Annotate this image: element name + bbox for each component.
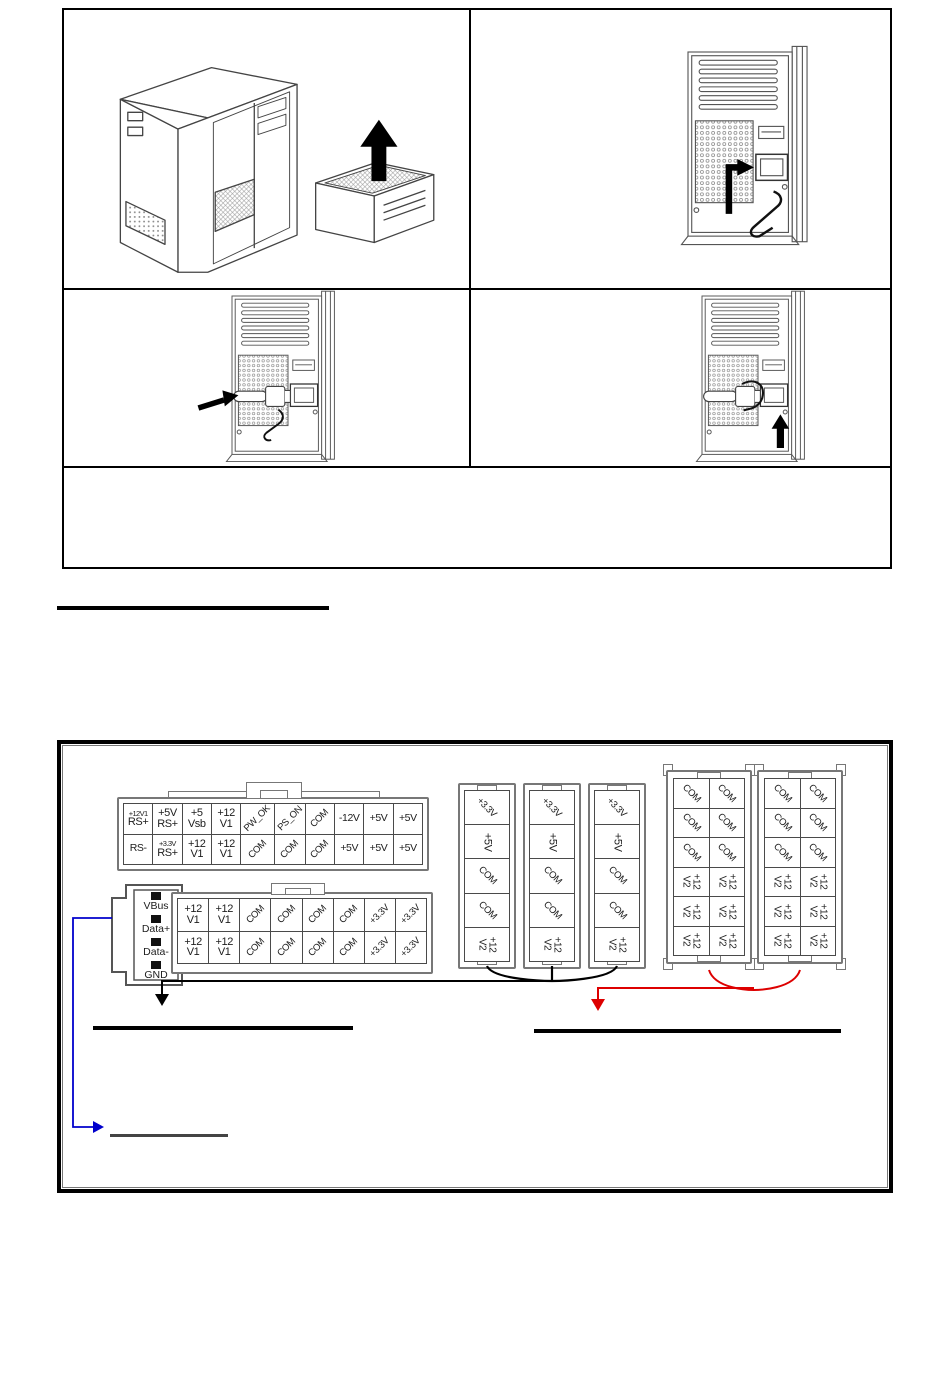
pin-label-line: RS+ — [157, 819, 178, 829]
pin-label-line: COM — [716, 812, 737, 833]
case-rear-panel — [696, 291, 804, 461]
pin-label-line: +12 — [487, 937, 497, 953]
pin-label-line: COM — [279, 839, 300, 860]
pin-cell: +12V2 — [800, 867, 836, 897]
pin-cell: +12V1 — [177, 898, 208, 931]
clip-secure-illustration — [470, 290, 886, 462]
pin-label-line: V1 — [220, 849, 233, 859]
pin-cell: +3.3V — [395, 898, 426, 931]
pin-label-line: +5V — [482, 832, 492, 851]
pin-label-line: +12 — [727, 903, 737, 919]
pin-cell: COM — [709, 837, 745, 867]
pin-label-line: +3.3V — [541, 796, 564, 819]
pin-label-line: V1 — [218, 947, 231, 957]
pin-label-line: +12 — [782, 933, 792, 949]
pin-label-line: V2 — [682, 906, 692, 917]
pin-cell: +12V1 — [208, 898, 239, 931]
pin-cell: COM — [764, 837, 800, 867]
pin-cell: COM — [305, 803, 334, 834]
pin-cell: COM — [274, 834, 305, 865]
usb-pin-icon — [151, 915, 161, 923]
pin-cell: COM — [270, 898, 301, 931]
psu-removal-illustration — [64, 10, 466, 276]
pin-cell: +12V2 — [464, 927, 509, 961]
pin-label-line: +3.3V — [400, 936, 423, 959]
pin-label-line: RS+ — [157, 848, 178, 858]
pin-cell: +3.3V — [594, 790, 639, 824]
pin-label-line: +12 — [691, 933, 701, 949]
pin-cell: +12V2 — [673, 867, 709, 897]
manual-page: +12V1RS++5VRS++5Vsb+12V1PW_OKPS_ONCOM-12… — [0, 0, 950, 1379]
case-rear-panel — [226, 291, 334, 461]
pin-label-line: V2 — [717, 906, 727, 917]
pin-cell: COM — [594, 893, 639, 927]
pin-label-line: +3.3V — [368, 936, 391, 959]
pin-cell: COM — [302, 931, 333, 964]
pin-label-line: COM — [276, 937, 297, 958]
pin-cell: +3.3V — [464, 790, 509, 824]
pin-label-line: COM — [338, 937, 359, 958]
pin-label-line: +12 — [818, 903, 828, 919]
pin-label-line: COM — [681, 812, 702, 833]
usb-pin-label: GND — [144, 969, 168, 981]
pin-label-line: +12 — [782, 903, 792, 919]
pin-label-line: +12 — [691, 903, 701, 919]
pin-label-line: V2 — [682, 935, 692, 946]
usb-pin-icon — [151, 892, 161, 900]
pin-label-line: PW_OK — [243, 804, 272, 833]
pin-cell: +5V — [363, 834, 392, 865]
pcie-pin-grid: COMCOMCOMCOMCOMCOM+12V2+12V2+12V2+12V2+1… — [673, 778, 745, 956]
pin-label-line: V1 — [187, 947, 200, 957]
pin-label-line: +12 — [782, 874, 792, 890]
pin-label-line: COM — [245, 937, 266, 958]
pin-label-line: +12 — [552, 937, 562, 953]
pin-cell: COM — [239, 898, 270, 931]
pin-cell: +12V1RS+ — [123, 803, 152, 834]
pcie-pin-grid: COMCOMCOMCOMCOMCOM+12V2+12V2+12V2+12V2+1… — [764, 778, 836, 956]
usb-pin-label: Data- — [143, 946, 169, 958]
computer-case — [120, 68, 297, 273]
usb-pin-label: VBus — [143, 900, 168, 912]
pin-label-line: +12 — [617, 937, 627, 953]
pin-cell: +12V1 — [177, 931, 208, 964]
pin-cell: +3.3V — [529, 790, 574, 824]
pin-label-line: V2 — [808, 906, 818, 917]
table-row-divider-2 — [64, 466, 890, 468]
usb-pin-label: Data+ — [142, 923, 170, 935]
pin-label-line: COM — [606, 865, 627, 886]
pin-label-line: V2 — [773, 906, 783, 917]
pin-cell: COM — [464, 858, 509, 892]
pin-label-line: Vsb — [188, 819, 206, 829]
pin-cell: COM — [764, 778, 800, 808]
pin-cell: +5V — [464, 824, 509, 858]
pin-label-line: +5V — [370, 814, 388, 824]
pin-label-line: +5V — [370, 844, 388, 854]
peripheral-pin-grid: +3.3V+5VCOMCOM+12V2 — [464, 790, 510, 962]
pin-cell: COM — [270, 931, 301, 964]
pin-label-line: +5V — [612, 832, 622, 851]
pin-cell: +3.3VRS+ — [152, 834, 181, 865]
pin-label-line: +3.3V — [400, 903, 423, 926]
pin-label-line: +5V — [399, 844, 417, 854]
pin-cell: COM — [709, 808, 745, 838]
pin-cell: COM — [764, 808, 800, 838]
cord-insert-illustration — [64, 290, 466, 462]
pin-label-line: COM — [541, 865, 562, 886]
pin-label-line: PS_ON — [276, 805, 304, 833]
pin-label-line: -12V — [339, 814, 360, 824]
pin-cell: COM — [673, 808, 709, 838]
pin-label-line: RS- — [130, 844, 147, 854]
pin-label-line: V1 — [220, 819, 233, 829]
pin-label-line: V2 — [808, 876, 818, 887]
pin-cell: COM — [239, 931, 270, 964]
pin-label-line: V1 — [218, 915, 231, 925]
right-label-underline — [534, 1029, 841, 1033]
pin-cell: +5Vsb — [182, 803, 211, 834]
pin-cell: COM — [673, 778, 709, 808]
pin-label-line: +5V — [547, 832, 557, 851]
pin-label-line: COM — [247, 839, 268, 860]
pin-cell: COM — [464, 893, 509, 927]
pin-cell: +12V2 — [594, 927, 639, 961]
pin-label-line: +12 — [727, 933, 737, 949]
pin-cell: COM — [800, 837, 836, 867]
pin-label-line: COM — [245, 904, 266, 925]
pin-cell: +12V2 — [709, 867, 745, 897]
pin-label-line: COM — [681, 783, 702, 804]
pin-cell: +3.3V — [364, 931, 395, 964]
pin-cell: +5V — [363, 803, 392, 834]
pin-cell: +12V2 — [709, 896, 745, 926]
usb-pin-icon — [151, 961, 161, 969]
pin-label-line: +12 — [727, 874, 737, 890]
pin-cell: -12V — [334, 803, 363, 834]
pin-label-line: COM — [276, 904, 297, 925]
pin-cell: +12V2 — [673, 896, 709, 926]
pin-cell: +12V1 — [208, 931, 239, 964]
pin-label-line: COM — [307, 904, 328, 925]
pin-label-line: COM — [772, 842, 793, 863]
pin-label-line: V2 — [808, 935, 818, 946]
pin-label-line: +5V — [340, 844, 358, 854]
pin-cell: COM — [302, 898, 333, 931]
pin-label-line: COM — [307, 937, 328, 958]
pin-label-line: COM — [476, 865, 497, 886]
pin-cell: COM — [709, 778, 745, 808]
pin-cell: +5V — [334, 834, 363, 865]
pin-cell: COM — [594, 858, 639, 892]
pin-cell: +12V1 — [182, 834, 211, 865]
pin-label-line: +3.3V — [368, 903, 391, 926]
pin-label-line: V2 — [773, 935, 783, 946]
atx-pin-grid: +12V1RS++5VRS++5Vsb+12V1PW_OKPS_ONCOM-12… — [123, 803, 423, 865]
pin-cell: +3.3V — [364, 898, 395, 931]
usb-label-underline — [110, 1134, 228, 1137]
pin-cell: COM — [529, 858, 574, 892]
peripheral-pin-grid: +3.3V+5VCOMCOM+12V2 — [529, 790, 575, 962]
eps-latch-tab-inner — [285, 888, 311, 895]
section-heading-underline — [57, 606, 329, 610]
pin-label-line: COM — [476, 900, 497, 921]
pin-cell: +5V — [393, 834, 422, 865]
pin-cell: +12V2 — [800, 896, 836, 926]
pin-cell: +5V — [529, 824, 574, 858]
pin-cell: COM — [800, 808, 836, 838]
pin-label-line: +3.3V — [476, 796, 499, 819]
pin-label-line: V2 — [717, 935, 727, 946]
pin-label-line: +12 — [691, 874, 701, 890]
rear-inlet-illustration — [470, 10, 886, 276]
pin-label-line: V2 — [717, 876, 727, 887]
pin-cell: COM — [673, 837, 709, 867]
pin-label-line: V1 — [187, 915, 200, 925]
pin-cell: +5V — [594, 824, 639, 858]
pin-cell: COM — [333, 931, 364, 964]
pin-cell: COM — [529, 893, 574, 927]
pin-cell: RS- — [123, 834, 152, 865]
case-rear-panel — [681, 46, 807, 244]
pin-label-line: COM — [716, 842, 737, 863]
pin-label-line: +5V — [399, 814, 417, 824]
pin-cell: COM — [800, 778, 836, 808]
pin-cell: PW_OK — [240, 803, 273, 834]
pin-label-line: RS+ — [128, 817, 149, 827]
pin-label-line: COM — [772, 783, 793, 804]
pin-label-line: COM — [772, 812, 793, 833]
pin-cell: +12V2 — [800, 926, 836, 956]
pin-cell: +5VRS+ — [152, 803, 181, 834]
pin-cell: +3.3V — [395, 931, 426, 964]
pin-cell: PS_ON — [274, 803, 305, 834]
peripheral-pin-grid: +3.3V+5VCOMCOM+12V2 — [594, 790, 640, 962]
pin-label-line: V2 — [773, 876, 783, 887]
pin-cell: +12V2 — [764, 867, 800, 897]
pin-label-line: +12 — [818, 874, 828, 890]
pin-label-line: V2 — [607, 939, 617, 950]
pin-cell: +12V2 — [764, 926, 800, 956]
pin-label-line: COM — [606, 900, 627, 921]
pin-label-line: V2 — [477, 939, 487, 950]
pin-cell: +12V2 — [529, 927, 574, 961]
pin-cell: +12V1 — [211, 803, 240, 834]
left-label-underline — [93, 1026, 353, 1030]
pin-label-line: +3.3V — [606, 796, 629, 819]
pin-label-line: COM — [309, 839, 330, 860]
pin-label-line: V2 — [682, 876, 692, 887]
pin-cell: COM — [240, 834, 273, 865]
pin-cell: +5V — [393, 803, 422, 834]
usb-pin-icon — [151, 938, 161, 946]
pin-cell: +12V2 — [673, 926, 709, 956]
pin-label-line: COM — [807, 842, 828, 863]
pin-cell: +12V2 — [709, 926, 745, 956]
pin-label-line: COM — [807, 783, 828, 804]
pin-label-line: +12 — [818, 933, 828, 949]
pin-label-line: V1 — [190, 849, 203, 859]
pin-label-line: COM — [716, 783, 737, 804]
eps-pin-grid: +12V1+12V1COMCOMCOMCOM+3.3V+3.3V+12V1+12… — [177, 898, 427, 964]
pin-label-line: COM — [338, 904, 359, 925]
pin-label-line: V2 — [542, 939, 552, 950]
pin-cell: COM — [305, 834, 334, 865]
pin-label-line: COM — [309, 808, 330, 829]
atx-latch-tab-inner — [260, 790, 288, 799]
pin-cell: +12V2 — [764, 896, 800, 926]
pin-label-line: COM — [807, 812, 828, 833]
pin-cell: COM — [333, 898, 364, 931]
pin-label-line: COM — [681, 842, 702, 863]
pin-label-line: COM — [541, 900, 562, 921]
pin-cell: +12V1 — [211, 834, 240, 865]
